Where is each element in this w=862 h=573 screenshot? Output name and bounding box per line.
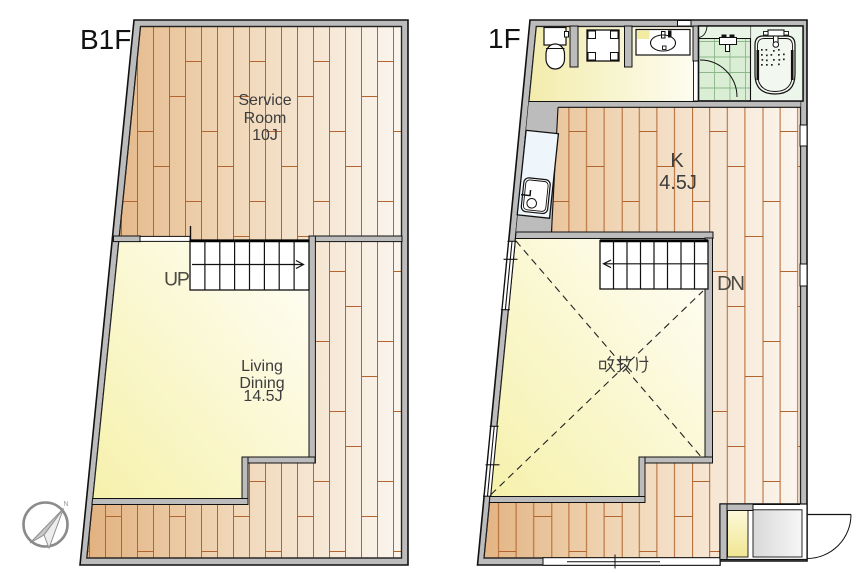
svg-text:Service: Service <box>238 92 291 109</box>
svg-text:B1F: B1F <box>80 24 131 55</box>
svg-text:K: K <box>670 150 684 172</box>
svg-text:10J: 10J <box>252 127 278 144</box>
svg-text:N: N <box>64 501 69 508</box>
svg-text:DN: DN <box>717 272 744 295</box>
svg-text:Room: Room <box>244 110 287 127</box>
svg-text:UP: UP <box>164 269 189 291</box>
svg-text:4.5J: 4.5J <box>659 172 697 194</box>
svg-text:1F: 1F <box>488 23 521 54</box>
svg-text:14.5J: 14.5J <box>243 388 282 405</box>
svg-text:Living: Living <box>241 358 283 375</box>
